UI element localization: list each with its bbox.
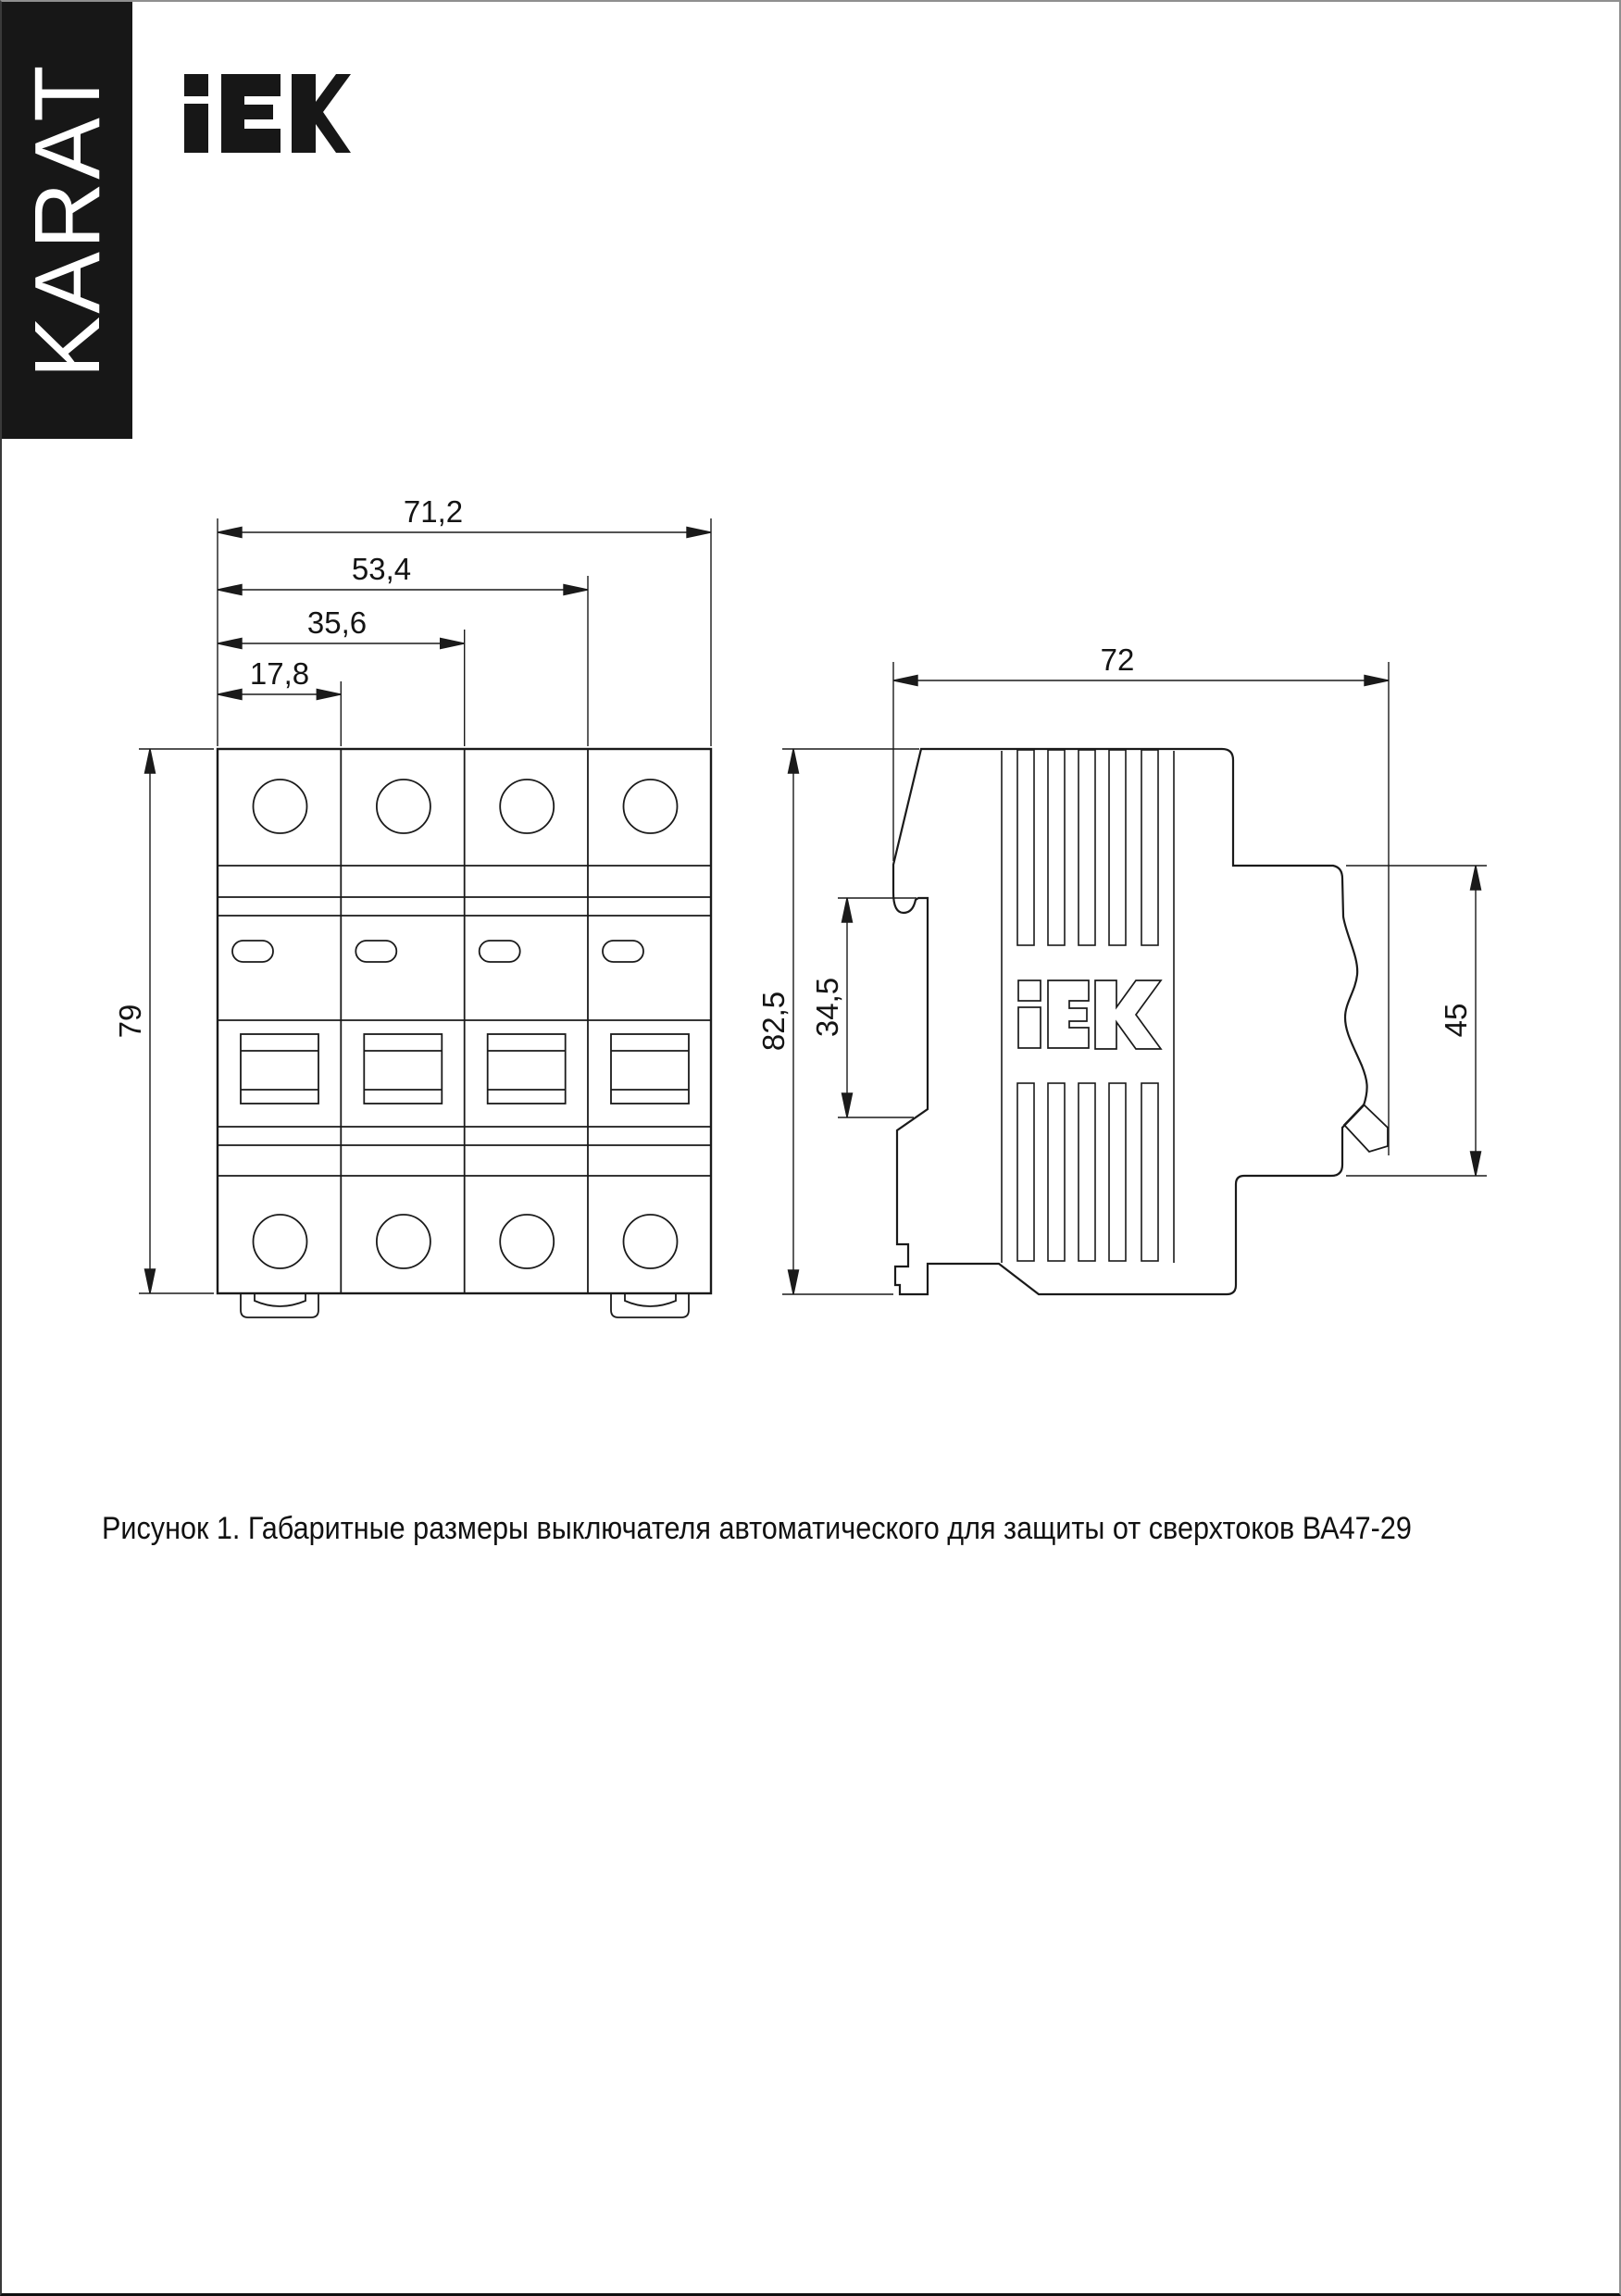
dim-front-panel-height: 45 [1346,866,1487,1176]
side-view-dimensions: 72 82,5 34,5 [756,643,1487,1294]
dim-rail-recess: 34,5 [810,898,916,1117]
marking-windows [232,941,643,962]
dim-label-35-6: 35,6 [307,605,367,640]
dim-one-pole: 17,8 [218,656,341,700]
figure-caption: Рисунок 1. Габаритные размеры выключател… [102,1511,1412,1547]
iek-embossed-logo [1018,980,1161,1049]
dim-label-79: 79 [113,1004,147,1039]
side-view [893,749,1388,1294]
din-clips [241,1293,689,1317]
dim-label-34-5: 34,5 [810,978,844,1037]
front-view-dimensions: 71,2 53,4 35,6 [113,494,711,1293]
dim-label-82-5: 82,5 [756,992,791,1051]
dim-label-53-4: 53,4 [352,552,411,586]
dim-label-72: 72 [1101,643,1135,677]
front-view [218,749,711,1317]
dim-label-17-8: 17,8 [250,656,309,691]
dimension-drawing: 71,2 53,4 35,6 [2,2,1621,2296]
dim-total-width: 71,2 [218,494,711,538]
dim-two-pole: 35,6 [218,605,465,649]
din-latch-hook [1344,1104,1388,1152]
dim-front-height: 79 [113,749,214,1293]
dim-label-45: 45 [1439,1004,1473,1038]
dim-three-pole: 53,4 [218,552,588,595]
document-page: KARAT [0,0,1621,2296]
dim-label-71-2: 71,2 [404,494,463,529]
